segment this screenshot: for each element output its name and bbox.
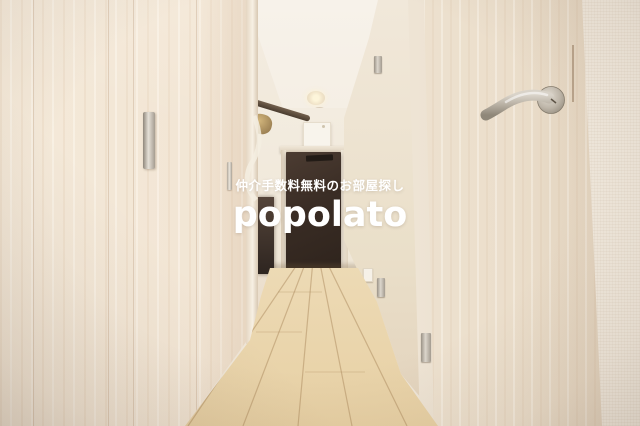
closet-bar-handle [143, 112, 155, 169]
closet-frame-edge [246, 0, 258, 344]
right-door-hinge [421, 333, 431, 362]
breaker-panel-latch [322, 125, 325, 128]
door-hinge-bottom-icon [377, 278, 385, 297]
ceiling-downlight [307, 91, 325, 105]
door-hinge-top-icon [374, 56, 382, 73]
entrance-door [286, 152, 341, 269]
closet-small-handle [227, 162, 232, 190]
hallway-photo: 仲介手数料無料のお部屋探し popolato [0, 0, 640, 426]
entry-mirror-panel [257, 197, 274, 274]
closet-door-seam [33, 0, 35, 426]
closet-door-seam [133, 0, 135, 426]
right-door-gap-line [572, 45, 574, 102]
closet-door-seam [108, 0, 110, 426]
breaker-panel [303, 122, 331, 149]
